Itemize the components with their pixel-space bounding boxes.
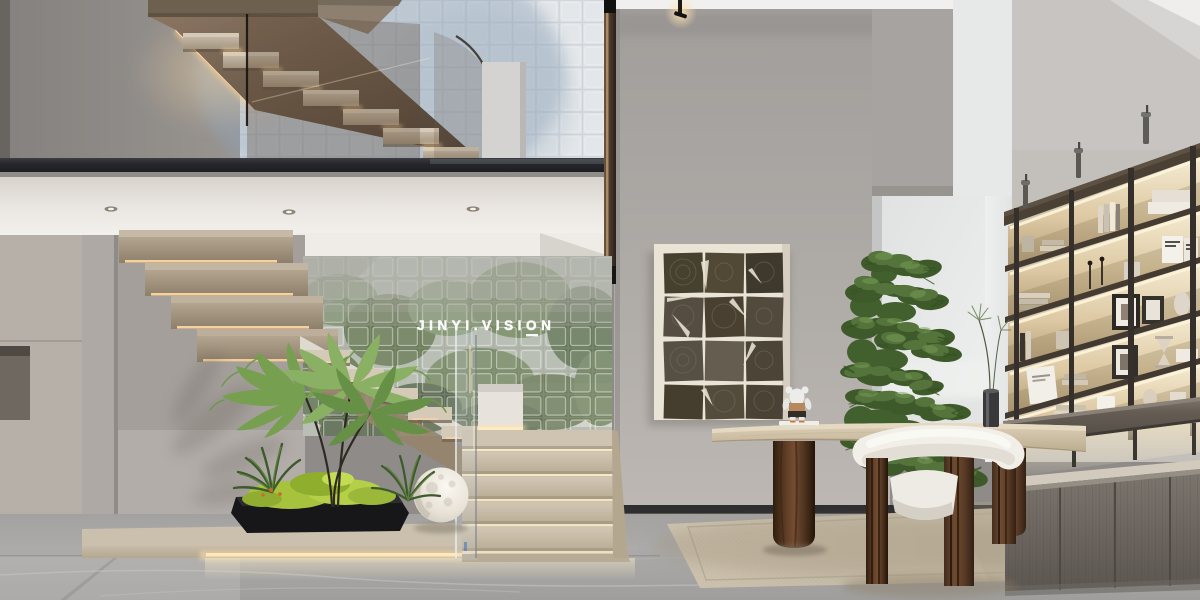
svg-text:JINYI.VISION: JINYI.VISION <box>417 318 555 333</box>
